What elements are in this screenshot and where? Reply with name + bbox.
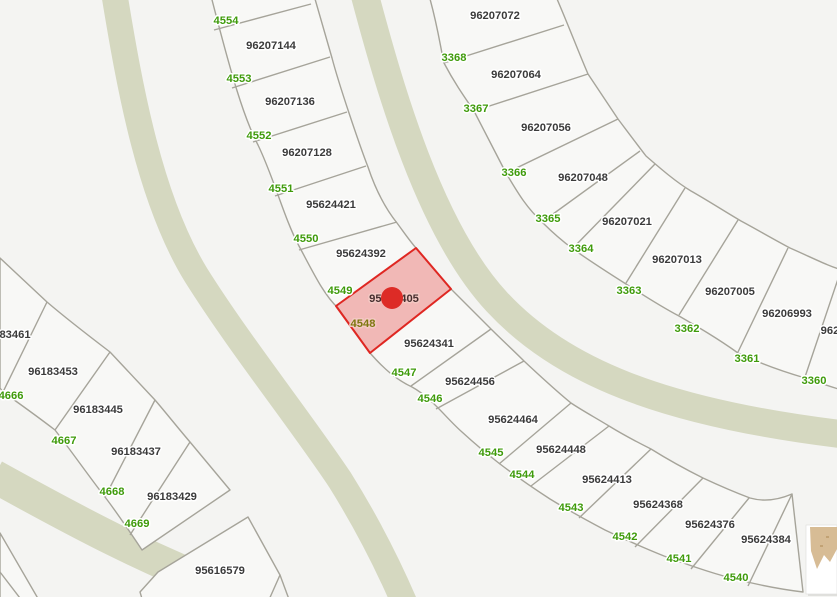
address-label-3360: 3360: [802, 375, 827, 387]
parcel-label-96207056: 96207056: [521, 122, 571, 134]
parcel-label-95624421: 95624421: [306, 199, 356, 211]
parcel-label-95624464: 95624464: [488, 414, 539, 426]
parcel-label-95624413: 95624413: [582, 474, 632, 486]
parcel-label-95616579: 95616579: [195, 565, 245, 577]
parcel-label-96207021: 96207021: [602, 216, 652, 228]
parcel-label-95624341: 95624341: [404, 338, 454, 350]
parcel-label-95624368: 95624368: [633, 499, 683, 511]
parcel-label-96207128: 96207128: [282, 147, 332, 159]
address-label-4545: 4545: [479, 447, 504, 459]
parcel-label-96206993: 96206993: [762, 308, 812, 320]
parcel-label-96183445: 96183445: [73, 404, 123, 416]
parcel-label-96207005: 96207005: [705, 286, 755, 298]
parcel-label-96183429: 96183429: [147, 491, 197, 503]
address-label-4551: 4551: [269, 183, 294, 195]
parcel-label-96183453: 96183453: [28, 366, 78, 378]
address-label-3368: 3368: [442, 52, 467, 64]
address-label-4553: 4553: [227, 73, 252, 85]
parcel-label-95624392: 95624392: [336, 248, 386, 260]
address-label-4549: 4549: [328, 285, 353, 297]
address-label-4669: 4669: [125, 518, 150, 530]
address-label-4668: 4668: [100, 486, 125, 498]
address-label-3364: 3364: [569, 243, 595, 255]
map-view[interactable]: 9620714496207136962071289562442195624392…: [0, 0, 837, 597]
address-label-4540: 4540: [724, 572, 749, 584]
map-canvas[interactable]: 9620714496207136962071289562442195624392…: [0, 0, 837, 597]
parcel-label-96207064: 96207064: [491, 69, 542, 81]
address-label-3363: 3363: [617, 285, 642, 297]
aerial-imagery-mark: [820, 545, 823, 547]
parcel-label-95624448: 95624448: [536, 444, 586, 456]
parcel-label-95624384: 95624384: [741, 534, 792, 546]
parcel-label-95624376: 95624376: [685, 519, 735, 531]
parcel-label-96207013: 96207013: [652, 254, 702, 266]
address-label-4543: 4543: [559, 502, 584, 514]
address-label-4542: 4542: [613, 531, 638, 543]
parcel-label-96183437: 96183437: [111, 446, 161, 458]
address-label-3362: 3362: [675, 323, 700, 335]
address-label-3361: 3361: [735, 353, 760, 365]
address-label-3366: 3366: [502, 167, 527, 179]
address-label-4552: 4552: [247, 130, 272, 142]
parcel-label-83461: 83461: [0, 329, 31, 341]
address-label-4541: 4541: [667, 553, 692, 565]
aerial-imagery-mark: [826, 536, 829, 538]
address-label-3367: 3367: [464, 103, 489, 115]
address-label-4546: 4546: [418, 393, 443, 405]
parcel-label-96207072: 96207072: [470, 10, 520, 22]
address-label-4547: 4547: [392, 367, 417, 379]
address-label-4554: 4554: [214, 15, 240, 27]
parcel-label-962: 962: [821, 325, 837, 337]
parcel-label-96207136: 96207136: [265, 96, 315, 108]
address-label-4667: 4667: [52, 435, 77, 447]
parcel-label-95624456: 95624456: [445, 376, 495, 388]
address-label-4666: 4666: [0, 390, 23, 402]
address-label-3365: 3365: [536, 213, 561, 225]
parcel-label-96207144: 96207144: [246, 40, 297, 52]
address-label-4548: 4548: [351, 318, 376, 330]
selected-parcel-marker-icon[interactable]: [381, 287, 403, 309]
address-label-4544: 4544: [510, 469, 536, 481]
parcel-label-96207048: 96207048: [558, 172, 608, 184]
address-label-4550: 4550: [294, 233, 319, 245]
